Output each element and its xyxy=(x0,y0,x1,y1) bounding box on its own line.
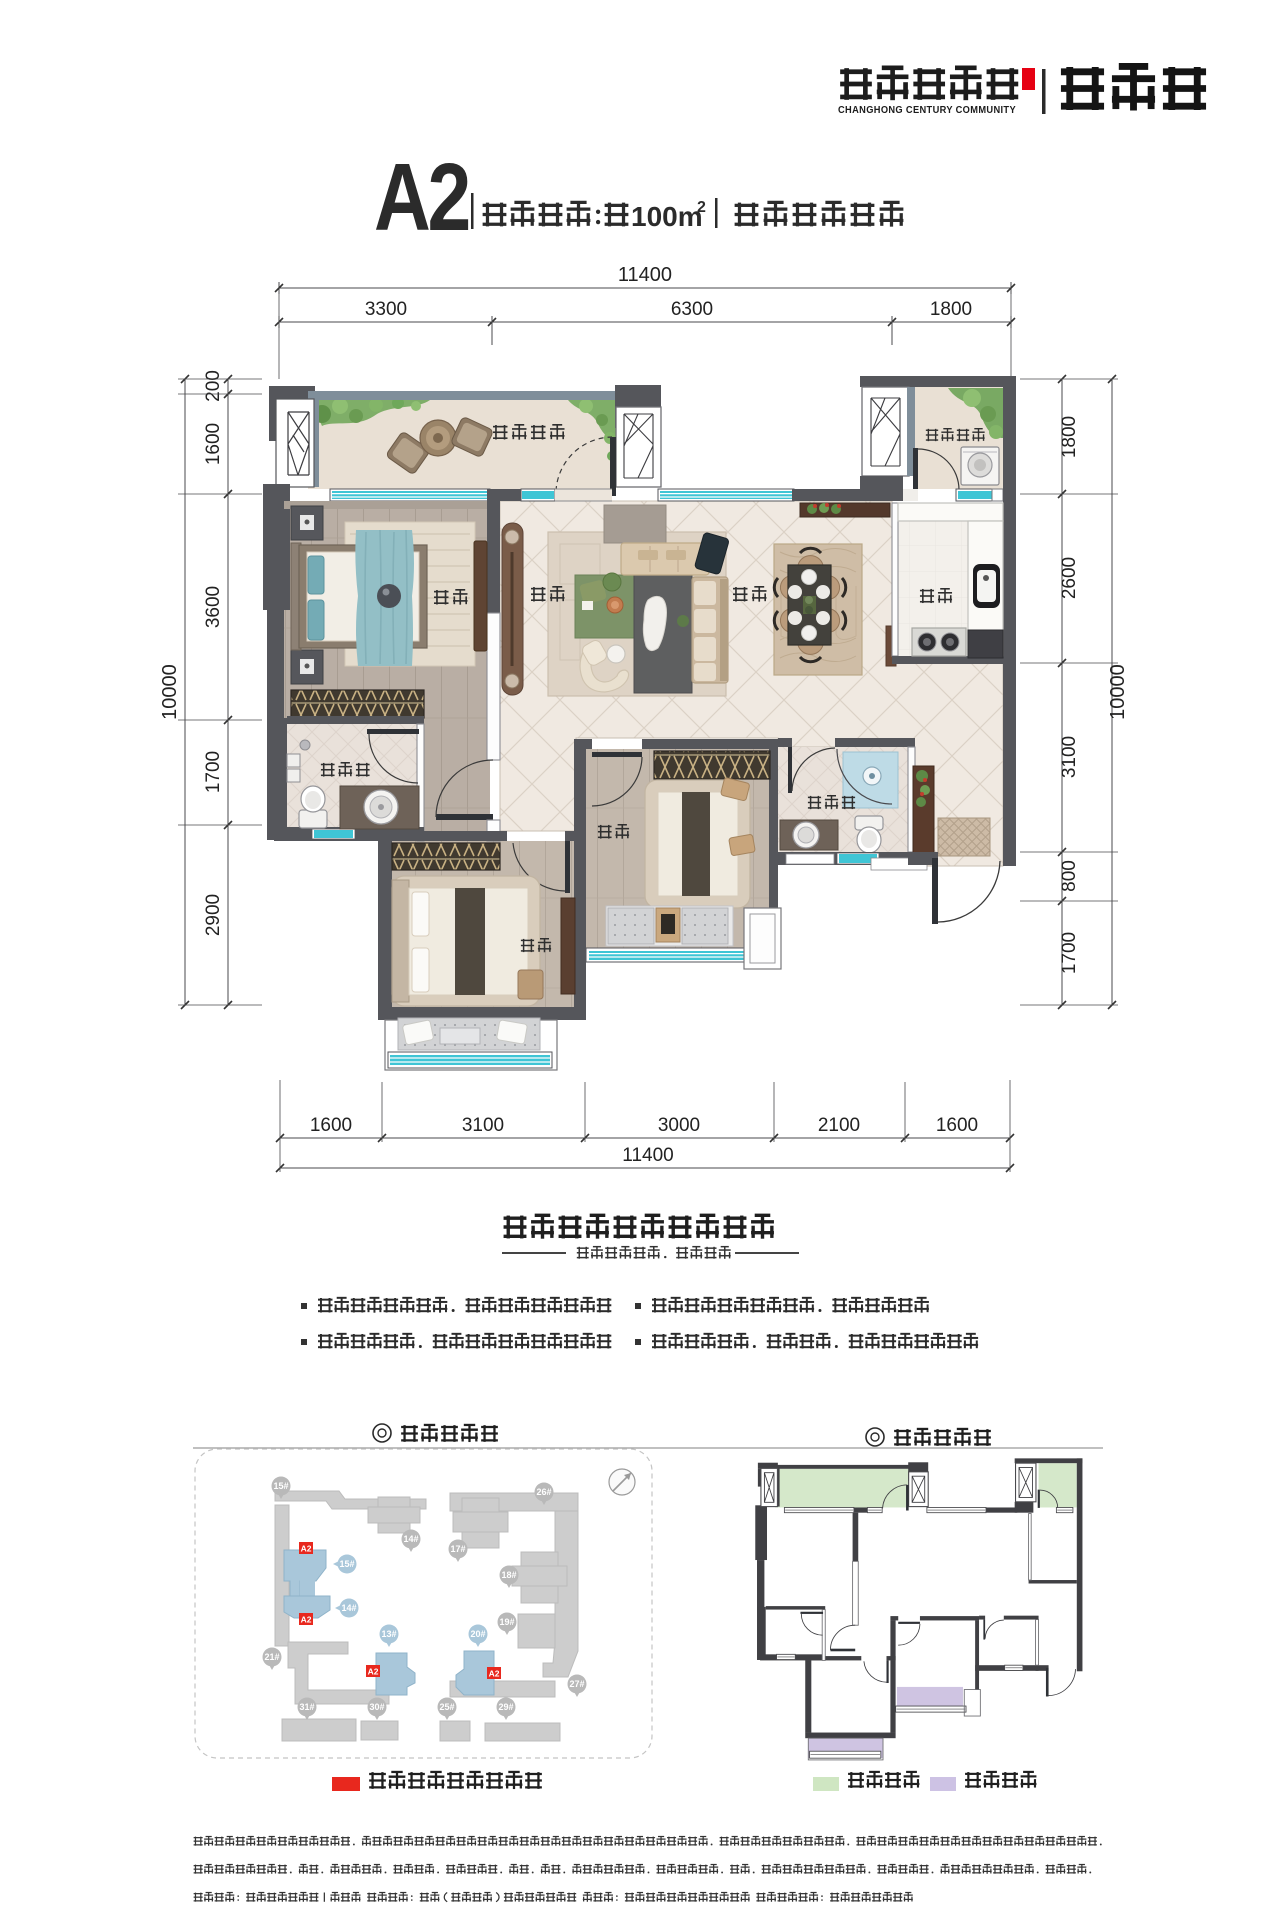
svg-text:6300: 6300 xyxy=(671,299,713,320)
svg-text:200: 200 xyxy=(203,370,224,402)
svg-text:A2: A2 xyxy=(301,1615,312,1625)
svg-text:2600: 2600 xyxy=(1059,557,1080,599)
svg-text:1600: 1600 xyxy=(203,423,224,465)
svg-text:3300: 3300 xyxy=(365,299,407,320)
svg-text:1700: 1700 xyxy=(1059,932,1080,974)
svg-text:20#: 20# xyxy=(470,1629,485,1639)
svg-text:21#: 21# xyxy=(264,1652,279,1662)
svg-text:15#: 15# xyxy=(273,1481,288,1491)
svg-text:11400: 11400 xyxy=(618,264,672,286)
svg-text:2: 2 xyxy=(697,199,706,216)
svg-text:2100: 2100 xyxy=(818,1115,860,1136)
svg-text:A2: A2 xyxy=(368,1667,379,1677)
svg-text:25#: 25# xyxy=(439,1702,454,1712)
svg-text:100m: 100m xyxy=(631,201,703,232)
svg-text:A2: A2 xyxy=(301,1544,312,1554)
svg-text:15#: 15# xyxy=(339,1559,354,1569)
svg-text:3100: 3100 xyxy=(1059,736,1080,778)
svg-text:3600: 3600 xyxy=(203,586,224,628)
svg-text:17#: 17# xyxy=(450,1544,465,1554)
svg-text:A2: A2 xyxy=(489,1669,500,1679)
svg-text:1600: 1600 xyxy=(936,1115,978,1136)
svg-text:1600: 1600 xyxy=(310,1115,352,1136)
svg-text:14#: 14# xyxy=(341,1603,356,1613)
svg-text:26#: 26# xyxy=(536,1487,551,1497)
svg-text:A2: A2 xyxy=(374,144,469,251)
svg-text:19#: 19# xyxy=(499,1617,514,1627)
svg-text:800: 800 xyxy=(1059,860,1080,892)
svg-text:1800: 1800 xyxy=(930,299,972,320)
svg-text:2900: 2900 xyxy=(203,894,224,936)
svg-text:14#: 14# xyxy=(403,1534,418,1544)
svg-text:11400: 11400 xyxy=(622,1145,673,1166)
svg-text:30#: 30# xyxy=(369,1702,384,1712)
svg-text:10000: 10000 xyxy=(159,664,181,720)
svg-text:27#: 27# xyxy=(569,1679,584,1689)
svg-text:CHANGHONG CENTURY COMMUNITY: CHANGHONG CENTURY COMMUNITY xyxy=(838,104,1016,116)
svg-text:3100: 3100 xyxy=(462,1115,504,1136)
svg-text:29#: 29# xyxy=(498,1702,513,1712)
svg-text:1700: 1700 xyxy=(203,751,224,793)
svg-text:1800: 1800 xyxy=(1059,416,1080,458)
svg-text:10000: 10000 xyxy=(1107,664,1129,720)
svg-text:18#: 18# xyxy=(501,1570,516,1580)
svg-text:13#: 13# xyxy=(381,1629,396,1639)
svg-text:3000: 3000 xyxy=(658,1115,700,1136)
svg-text:31#: 31# xyxy=(299,1702,314,1712)
